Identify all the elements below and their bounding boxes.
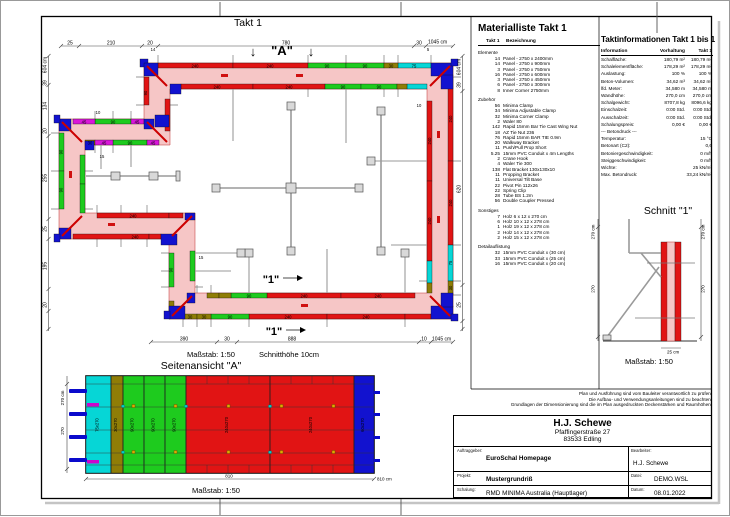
dim-chain-top: 25 210 20 780 30 1045 cm	[59, 40, 455, 49]
corner-blocks	[54, 59, 458, 321]
svg-text:45: 45	[151, 140, 156, 145]
svg-text:"1": "1"	[266, 326, 283, 338]
taktinfo-row: Schalgewicht:8707,8 kg8096,6 kg	[601, 99, 713, 106]
svg-text:780: 780	[282, 41, 291, 47]
svg-text:240: 240	[448, 115, 453, 123]
svg-text:90: 90	[143, 90, 148, 95]
svg-text:90: 90	[111, 119, 116, 124]
svg-text:30: 30	[88, 140, 93, 145]
titleblock-row-project: Projekt: Mustergrundriß Datei: DEMO.WSL	[454, 472, 711, 486]
taktin fo-header: Information Vorhaltung Takt 1	[601, 49, 713, 56]
svg-text:14: 14	[151, 47, 156, 52]
section-detailauflistung: Detailauflistung	[478, 244, 600, 249]
svg-text:240: 240	[363, 314, 371, 319]
svg-text:810: 810	[225, 474, 233, 479]
cell-bearbeiter: Bearbeiter: H.J. Schewe	[628, 447, 711, 471]
taktinfo-row: Wichte:25 kN/m³	[601, 164, 713, 171]
svg-text:45: 45	[135, 119, 140, 124]
dim-chain-left: 604 cm 39 134 20 255 25 195 20	[43, 54, 51, 331]
taktinfo-row: Temperatur:15 °C	[601, 135, 713, 142]
svg-text:810 cm: 810 cm	[377, 477, 392, 482]
plan-title: Takt 1	[234, 17, 262, 29]
svg-text:240: 240	[427, 137, 432, 145]
svg-text:90x270: 90x270	[130, 417, 135, 431]
svg-text:240: 240	[375, 293, 383, 298]
svg-text:25: 25	[43, 226, 49, 232]
svg-text:240: 240	[267, 64, 275, 69]
material-list-elemente: 14Panel - 2750 x 2400mm14Panel - 2750 x …	[478, 56, 600, 93]
svg-text:1045 cm: 1045 cm	[432, 337, 451, 343]
plan-view: Takt 1 ↓ "A" ↓	[43, 17, 465, 359]
seitenansicht-view: Seitenansicht "A"	[60, 360, 392, 495]
svg-text:255: 255	[43, 174, 49, 183]
taktinfo-row: Wandhöhe:270,0 cm270,0 cm	[601, 92, 713, 99]
svg-text:1045 cm: 1045 cm	[428, 40, 447, 46]
svg-text:30: 30	[448, 285, 453, 290]
svg-text:"1": "1"	[263, 274, 280, 286]
svg-text:270 cm: 270 cm	[701, 224, 706, 239]
svg-text:270: 270	[701, 285, 706, 293]
plan-cut-height: Schnitthöhe 10cm	[259, 350, 319, 359]
cell-schalung: Schalung: RMD MINIMA Australia (Hauptlag…	[454, 486, 629, 499]
svg-text:90: 90	[363, 64, 368, 69]
disclaimer: Plan und Ausführung sind vom Bauleiter v…	[453, 391, 712, 408]
svg-text:604 cm: 604 cm	[43, 57, 49, 73]
svg-text:90: 90	[59, 149, 64, 154]
section-1-marker-upper: "1"	[263, 274, 303, 286]
svg-text:240: 240	[427, 217, 432, 225]
svg-text:10: 10	[417, 103, 422, 108]
svg-text:30x270: 30x270	[113, 417, 118, 431]
corner-seams	[62, 66, 450, 316]
svg-text:90x270: 90x270	[151, 417, 156, 431]
svg-text:240: 240	[301, 293, 309, 298]
material-list-detail: 3215mm PVC Conduit x (30 cm)3315mm PVC C…	[478, 250, 600, 266]
svg-text:25 cm: 25 cm	[667, 350, 680, 355]
titleblock-row-formwork: Schalung: RMD MINIMA Australia (Hauptlag…	[454, 486, 711, 499]
svg-text:30: 30	[202, 314, 207, 319]
company-block: H.J. Schewe Pfaffingerstraße 27 83533 Ed…	[454, 416, 711, 447]
taktinfo-row: Einschalzeit:0:00 Std.0:00 Std.	[601, 106, 713, 113]
material-row: 8Inner Corner 2750mm	[478, 88, 600, 93]
material-list-sonstiges: 7Holz 6 x 12 x 270 cm6Holz 10 x 12 x 278…	[478, 214, 600, 240]
plan-scale: Maßstab: 1:50	[187, 350, 235, 359]
taktinfo-row: Schalfläche:180,79 m²180,79 m²	[601, 56, 713, 63]
materialliste-title: Materialliste Takt 1	[478, 23, 600, 34]
svg-text:240: 240	[192, 64, 200, 69]
title-block: H.J. Schewe Pfaffingerstraße 27 83533 Ed…	[453, 415, 712, 498]
cell-auftraggeber: Auftraggeber: EuroSchal Homepage	[454, 447, 629, 471]
svg-text:604 cm: 604 cm	[457, 59, 463, 75]
svg-text:90: 90	[169, 267, 174, 272]
section-sonstiges: Sonstiges	[478, 208, 600, 213]
svg-text:210: 210	[107, 41, 116, 47]
svg-text:390: 390	[180, 337, 189, 343]
taktinfo-rows: Schalfläche:180,79 m²180,79 m²Schaleleme…	[601, 56, 713, 178]
svg-text:15: 15	[199, 255, 204, 260]
svg-text:240x270: 240x270	[224, 416, 229, 433]
taktinfo-row: Schalelementfläche:178,29 m²178,29 m²	[601, 63, 713, 70]
svg-text:10: 10	[96, 110, 101, 115]
svg-text:20: 20	[43, 128, 49, 134]
svg-text:25: 25	[457, 302, 463, 308]
svg-text:270: 270	[591, 285, 596, 293]
svg-text:134: 134	[43, 102, 49, 111]
svg-text:15: 15	[100, 154, 105, 159]
taktinfo-row: Betoniergeschwindigkeit:0 m/h	[601, 150, 713, 157]
schnitt-view: Schnitt "1" 270 cm 270 270 cm 270 25 cm …	[591, 205, 706, 366]
svg-text:240: 240	[286, 85, 294, 90]
cell-datum: Datum: 08.01.2022	[628, 486, 711, 499]
material-list-zubehoer: 56Minima Clamp34Minima Adjustable Clamp3…	[478, 103, 600, 204]
svg-text:45: 45	[102, 140, 107, 145]
svg-text:90: 90	[341, 85, 346, 90]
titleblock-row-client: Auftraggeber: EuroSchal Homepage Bearbei…	[454, 447, 711, 472]
material-row: 2Holz 15 x 12 x 278 cm	[478, 235, 600, 240]
material-row: 1615mm PVC Conduit x (20 cm)	[478, 261, 600, 266]
taktinfo-title: Taktinformationen Takt 1 bis 1	[601, 35, 713, 44]
seitenansicht-title: Seitenansicht "A"	[161, 360, 242, 372]
taktinfo-row: Max. Betondruck:33,24 kN/m²	[601, 171, 713, 178]
divider	[478, 45, 600, 46]
svg-text:75x270: 75x270	[95, 417, 100, 431]
svg-text:30: 30	[389, 64, 394, 69]
svg-text:30: 30	[416, 41, 422, 47]
company-city: 83533 Edling	[454, 436, 711, 443]
svg-text:25: 25	[67, 41, 73, 47]
svg-text:240: 240	[130, 213, 138, 218]
svg-text:60x270: 60x270	[360, 417, 365, 431]
material-row: 56Double Coupler Pressed	[478, 198, 600, 203]
svg-text:30: 30	[188, 314, 193, 319]
svg-text:75: 75	[448, 260, 453, 265]
svg-text:75: 75	[412, 64, 417, 69]
taktinfo-row: Steiggeschwindigkeit:0 m/h	[601, 157, 713, 164]
schnitt-title: Schnitt "1"	[644, 205, 693, 217]
svg-text:90: 90	[325, 64, 330, 69]
svg-text:240: 240	[285, 314, 293, 319]
section-zubehoer: Zubehör	[478, 97, 600, 102]
svg-text:270: 270	[60, 427, 65, 435]
materialliste-header: Takt 1 Bezeichnung	[478, 39, 600, 44]
svg-text:195: 195	[43, 262, 49, 271]
svg-text:39: 39	[43, 80, 49, 86]
svg-text:20: 20	[43, 302, 49, 308]
company-street: Pfaffingerstraße 27	[454, 429, 711, 436]
taktinfo-row: Schalungspreis:0,00 €0,00 €	[601, 121, 713, 128]
wall-ties	[51, 55, 461, 327]
svg-text:240: 240	[448, 199, 453, 207]
seitenansicht-scale: Maßstab: 1:50	[192, 486, 240, 495]
svg-text:45: 45	[82, 119, 87, 124]
plan-sheet: Takt 1 ↓ "A" ↓	[0, 0, 730, 516]
taktinfo-row: Betonart (C2):0,6	[601, 142, 713, 149]
company-name: H.J. Schewe	[454, 418, 711, 429]
svg-text:620: 620	[457, 185, 463, 194]
svg-text:5: 5	[427, 47, 430, 52]
svg-text:270 cm: 270 cm	[60, 390, 65, 405]
wall-core	[59, 63, 453, 319]
svg-text:90: 90	[377, 85, 382, 90]
taktinfo-row: Auslastung:100 %100 %	[601, 70, 713, 77]
svg-text:240x270: 240x270	[308, 416, 313, 433]
svg-text:240: 240	[132, 234, 140, 239]
svg-text:90: 90	[59, 187, 64, 192]
taktinfo-row: Ausschalzeit:0:00 Std.0:00 Std.	[601, 114, 713, 121]
svg-text:10: 10	[421, 337, 427, 343]
svg-text:30: 30	[224, 337, 230, 343]
section-elemente: Elemente	[478, 50, 600, 55]
dim-chain-right: 604 cm 39 620 25	[457, 54, 465, 331]
svg-text:90x270: 90x270	[172, 417, 177, 431]
cell-datei: Datei: DEMO.WSL	[628, 472, 711, 485]
materialliste-panel: Materialliste Takt 1 Takt 1 Bezeichnung …	[478, 23, 600, 266]
taktinfo-row: Beton-Volumen:34,62 m³34,62 m³	[601, 78, 713, 85]
taktinfo-row: --- Betondruck ---	[601, 128, 713, 135]
svg-text:888: 888	[288, 337, 297, 343]
svg-text:90: 90	[247, 293, 252, 298]
svg-text:39: 39	[457, 82, 463, 88]
taktinfo-row: lfd. Meter:34,580 m34,580 m	[601, 85, 713, 92]
section-1-marker-lower: "1"	[266, 326, 306, 338]
svg-text:240: 240	[214, 85, 222, 90]
taktinfo-panel: Taktinformationen Takt 1 bis 1 Informati…	[601, 35, 713, 178]
svg-text:90: 90	[128, 140, 133, 145]
svg-text:20: 20	[147, 41, 153, 47]
dim-chain-bottom: 390 30 888 10 1045 cm	[149, 337, 455, 345]
svg-text:90: 90	[228, 314, 233, 319]
schnitt-scale: Maßstab: 1:50	[625, 357, 673, 366]
cell-projekt: Projekt: Mustergrundriß	[454, 472, 629, 485]
panel-labels: 240 240 90 90 30 75 240 240 90 90 240 24…	[59, 64, 454, 320]
